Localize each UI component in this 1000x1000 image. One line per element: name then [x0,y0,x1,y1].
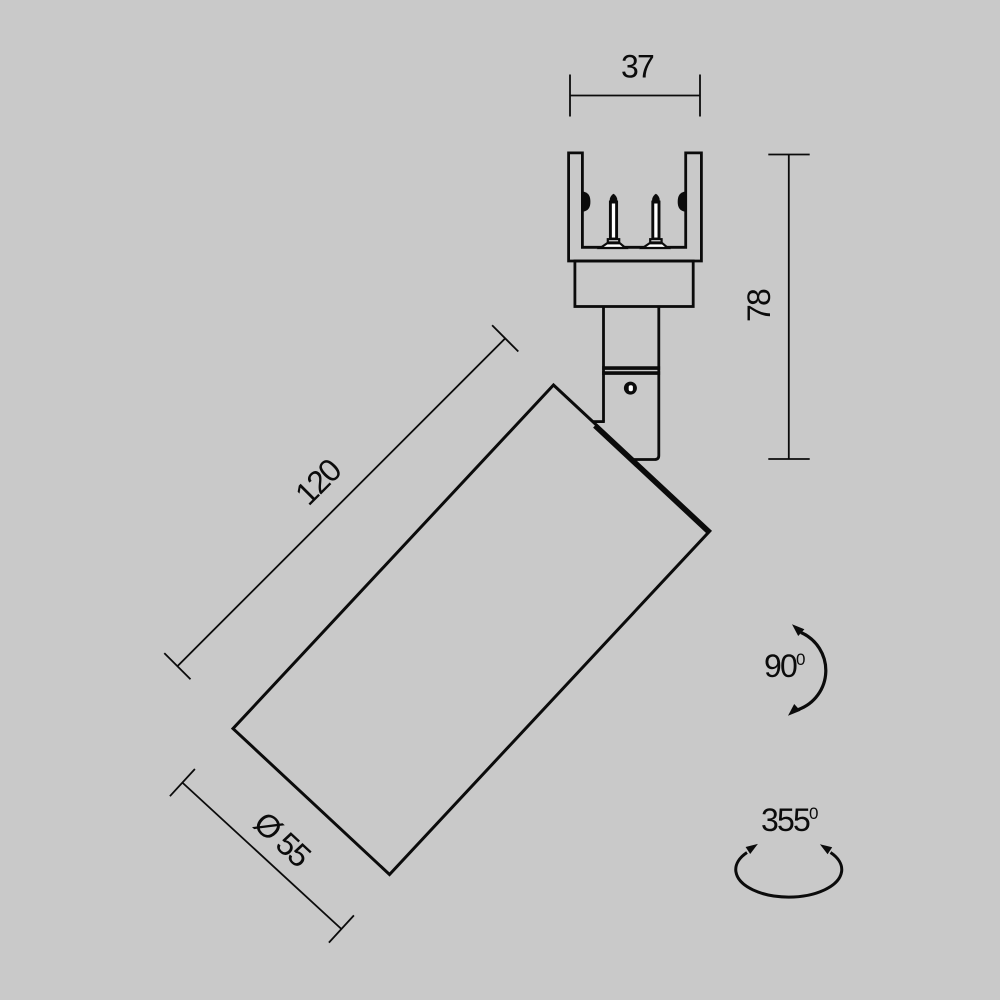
svg-text:78: 78 [741,289,777,322]
svg-text:37: 37 [621,49,654,85]
